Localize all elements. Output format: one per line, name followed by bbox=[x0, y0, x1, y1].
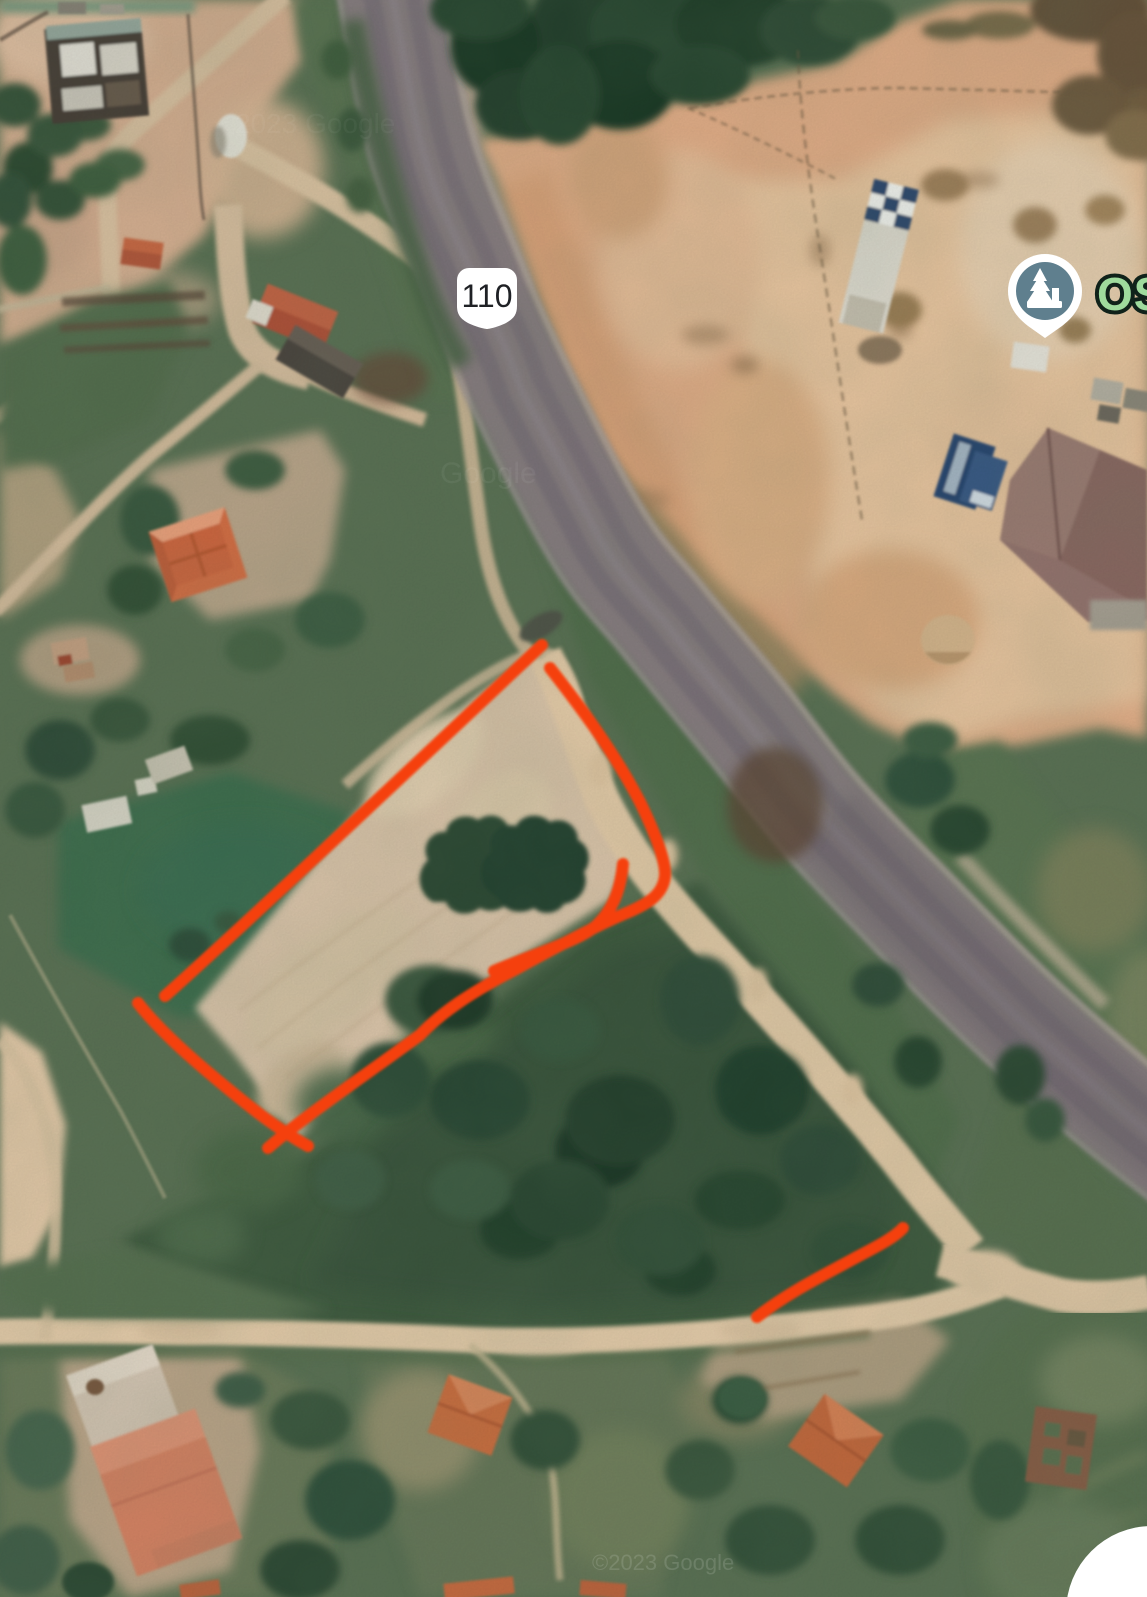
svg-text:Google: Google bbox=[440, 457, 537, 490]
svg-text:©2023 Google: ©2023 Google bbox=[592, 1550, 734, 1575]
svg-text:2023 Google: 2023 Google bbox=[235, 108, 395, 139]
svg-text:110: 110 bbox=[461, 278, 512, 314]
svg-text:OS: OS bbox=[1097, 268, 1147, 320]
